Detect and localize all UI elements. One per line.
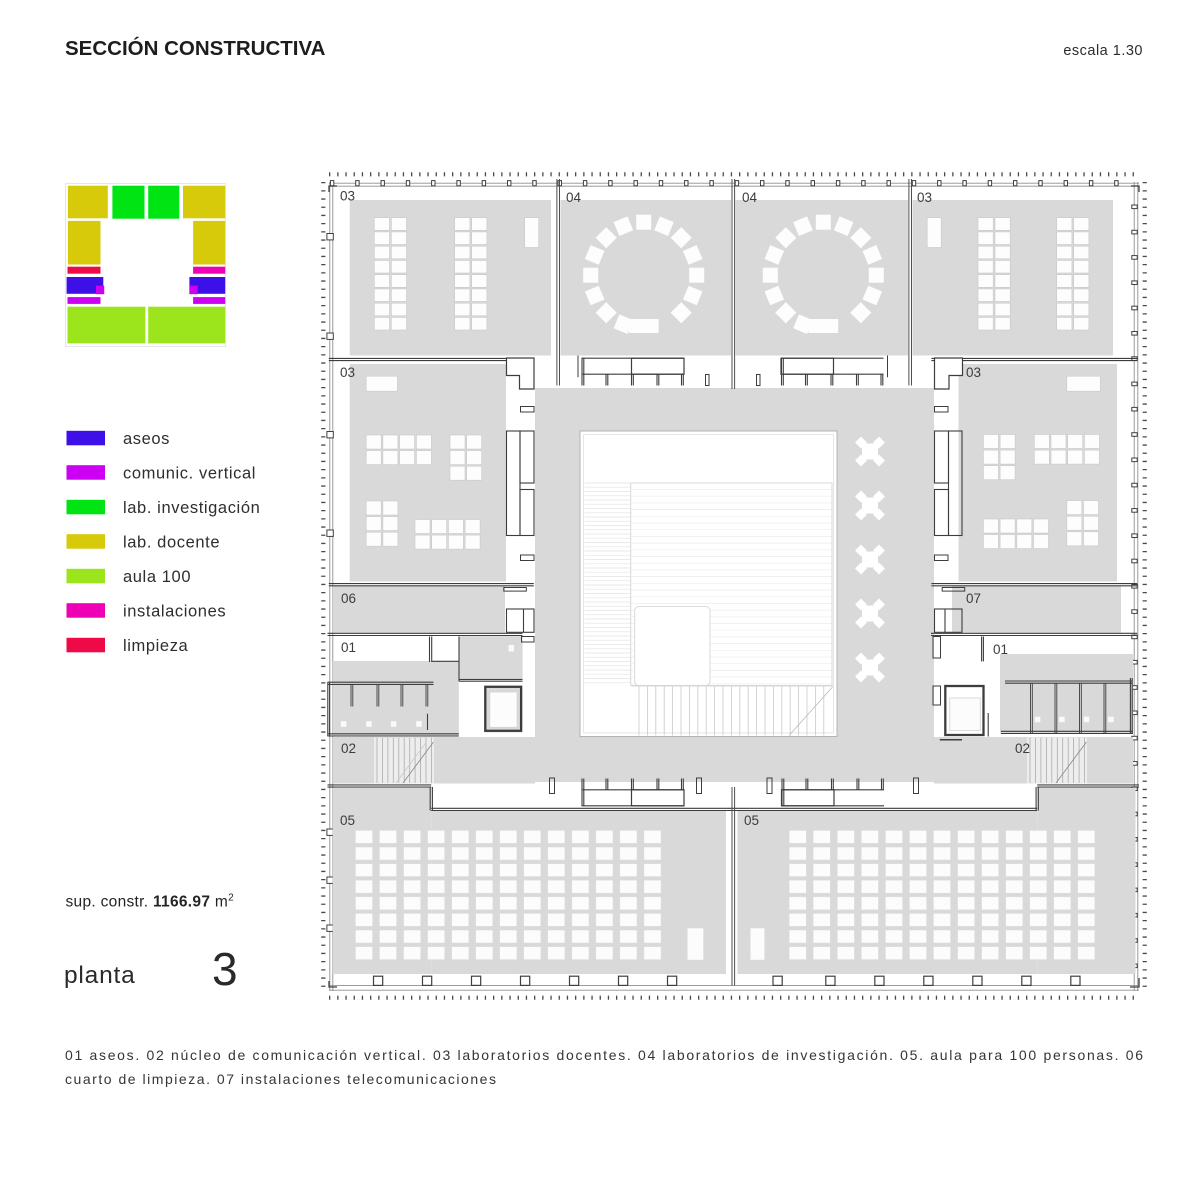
svg-text:instalaciones: instalaciones: [123, 602, 226, 620]
svg-text:limpieza: limpieza: [123, 637, 189, 655]
svg-text:sup. constr. 1166.97 m2: sup. constr. 1166.97 m2: [66, 893, 235, 911]
svg-text:05: 05: [340, 813, 355, 828]
svg-text:3: 3: [212, 943, 238, 995]
svg-text:02: 02: [341, 741, 356, 756]
svg-text:07: 07: [966, 591, 981, 606]
svg-text:04: 04: [742, 190, 758, 205]
svg-text:03: 03: [966, 365, 981, 380]
svg-text:01: 01: [341, 640, 356, 655]
svg-text:05: 05: [744, 813, 759, 828]
svg-text:escala 1.30: escala 1.30: [1063, 43, 1143, 59]
svg-text:06: 06: [341, 591, 356, 606]
svg-text:04: 04: [566, 190, 582, 205]
svg-text:lab. investigación: lab. investigación: [123, 499, 260, 517]
svg-text:03: 03: [917, 190, 932, 205]
svg-text:planta: planta: [64, 962, 136, 989]
svg-text:aula 100: aula 100: [123, 568, 191, 586]
svg-text:SECCIÓN CONSTRUCTIVA: SECCIÓN CONSTRUCTIVA: [65, 36, 326, 60]
svg-text:01: 01: [993, 642, 1008, 657]
svg-text:lab. docente: lab. docente: [123, 533, 220, 551]
svg-text:cuarto de limpieza. 07 instala: cuarto de limpieza. 07 instalaciones tel…: [65, 1071, 496, 1087]
svg-text:aseos: aseos: [123, 430, 170, 448]
svg-text:02: 02: [1015, 741, 1030, 756]
svg-text:03: 03: [340, 365, 355, 380]
svg-text:03: 03: [340, 189, 355, 204]
svg-text:comunic. vertical: comunic. vertical: [123, 464, 256, 482]
